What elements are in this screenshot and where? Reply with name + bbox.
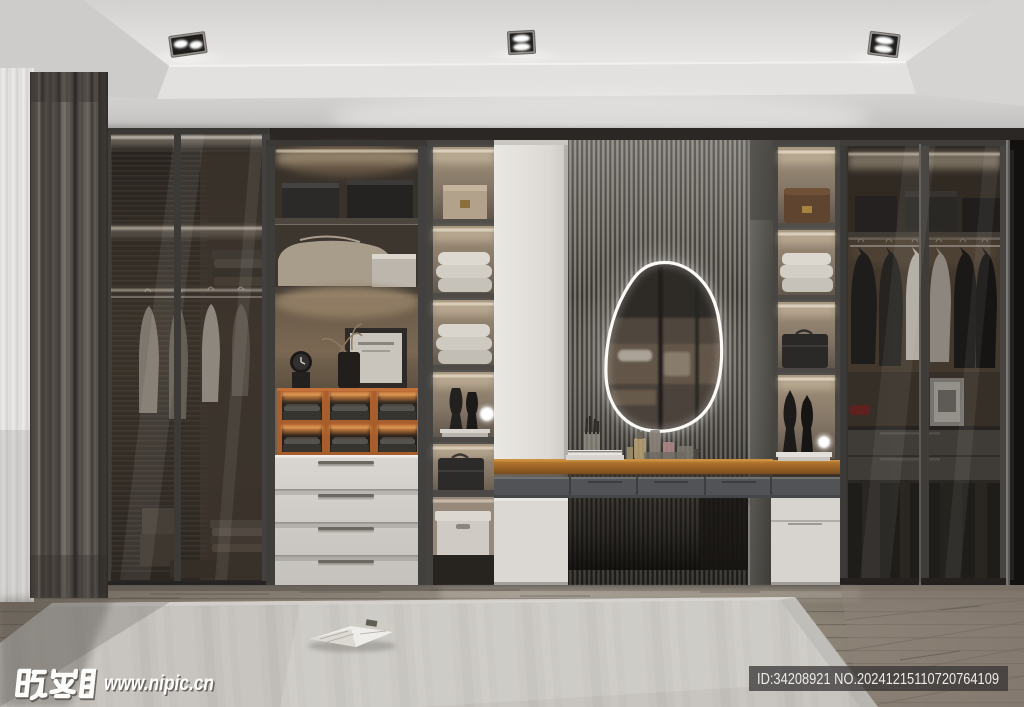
svg-text:ID:34208921 NO.202412151107207: ID:34208921 NO.20241215110720764109 (757, 671, 999, 688)
svg-text:www.nipic.cn: www.nipic.cn (104, 672, 214, 695)
